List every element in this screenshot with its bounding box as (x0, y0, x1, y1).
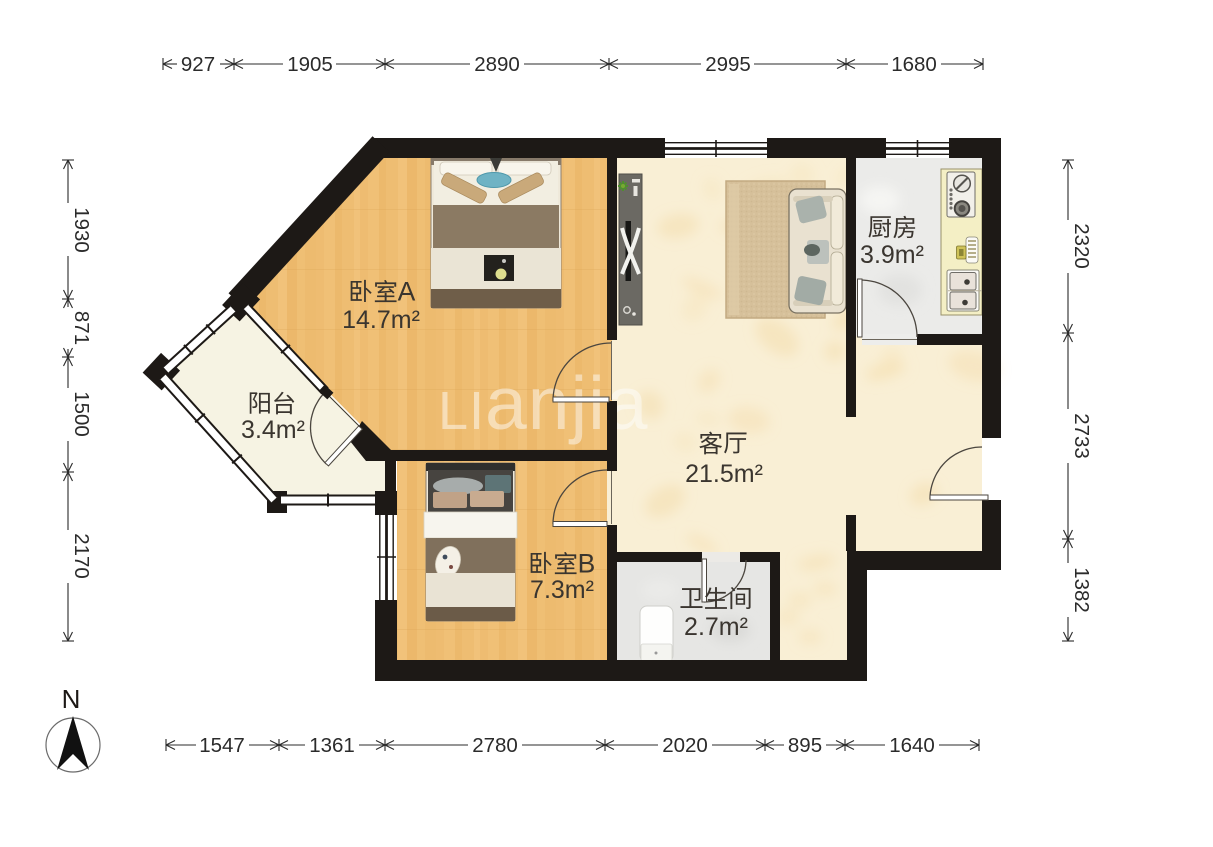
svg-text:2780: 2780 (472, 734, 518, 757)
svg-text:1905: 1905 (287, 53, 333, 76)
svg-text:1382: 1382 (1070, 567, 1093, 613)
svg-text:1930: 1930 (70, 207, 93, 253)
svg-text:2890: 2890 (474, 53, 520, 76)
svg-text:871: 871 (70, 311, 93, 345)
svg-text:N: N (62, 684, 81, 714)
svg-text:1640: 1640 (889, 734, 935, 757)
svg-text:3.4m²: 3.4m² (241, 416, 305, 444)
svg-text:B: B (578, 549, 596, 579)
svg-text:1547: 1547 (199, 734, 245, 757)
svg-text:927: 927 (181, 53, 215, 76)
svg-text:2320: 2320 (1070, 223, 1093, 269)
svg-text:2733: 2733 (1070, 413, 1093, 459)
svg-text:3.9m²: 3.9m² (860, 241, 924, 269)
svg-text:1680: 1680 (891, 53, 937, 76)
svg-text:14.7m²: 14.7m² (342, 306, 420, 334)
svg-text:895: 895 (788, 734, 822, 757)
svg-text:2020: 2020 (662, 734, 708, 757)
svg-text:2.7m²: 2.7m² (684, 613, 748, 641)
svg-text:21.5m²: 21.5m² (685, 460, 763, 488)
svg-text:2995: 2995 (705, 53, 751, 76)
svg-text:1361: 1361 (309, 734, 355, 757)
svg-text:2170: 2170 (70, 533, 93, 579)
svg-text:1500: 1500 (70, 391, 93, 437)
svg-text:A: A (398, 277, 416, 307)
svg-text:7.3m²: 7.3m² (530, 576, 594, 604)
